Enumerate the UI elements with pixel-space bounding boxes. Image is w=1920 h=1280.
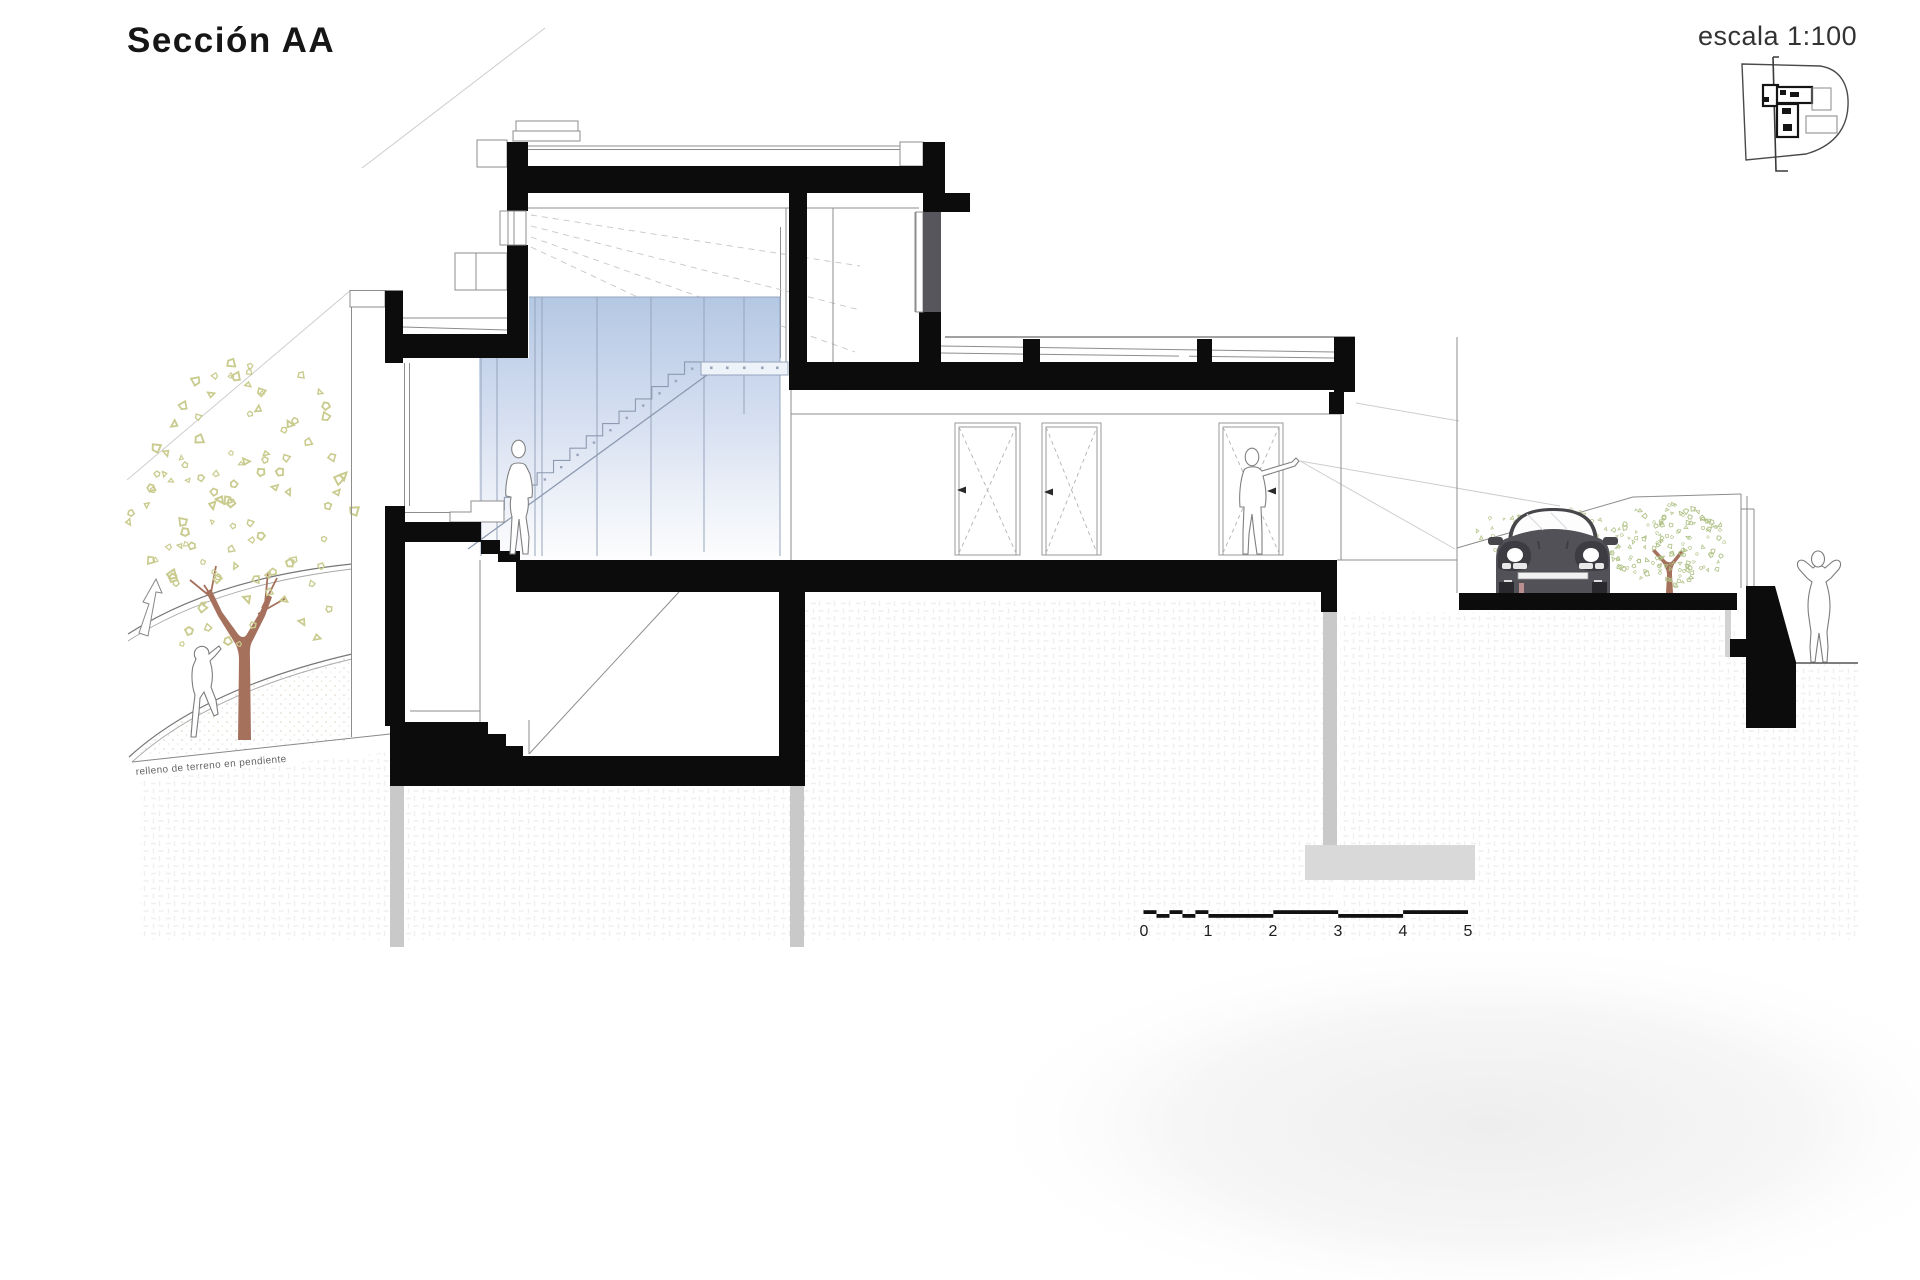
svg-text:5: 5 — [1464, 923, 1473, 940]
svg-text:4: 4 — [1399, 923, 1408, 940]
svg-text:1: 1 — [1204, 923, 1213, 940]
svg-text:3: 3 — [1334, 923, 1343, 940]
svg-text:2: 2 — [1269, 923, 1278, 940]
svg-text:0: 0 — [1140, 923, 1149, 940]
svg-text:escala 1:100: escala 1:100 — [1698, 21, 1857, 51]
svg-text:Sección AA: Sección AA — [127, 21, 335, 60]
